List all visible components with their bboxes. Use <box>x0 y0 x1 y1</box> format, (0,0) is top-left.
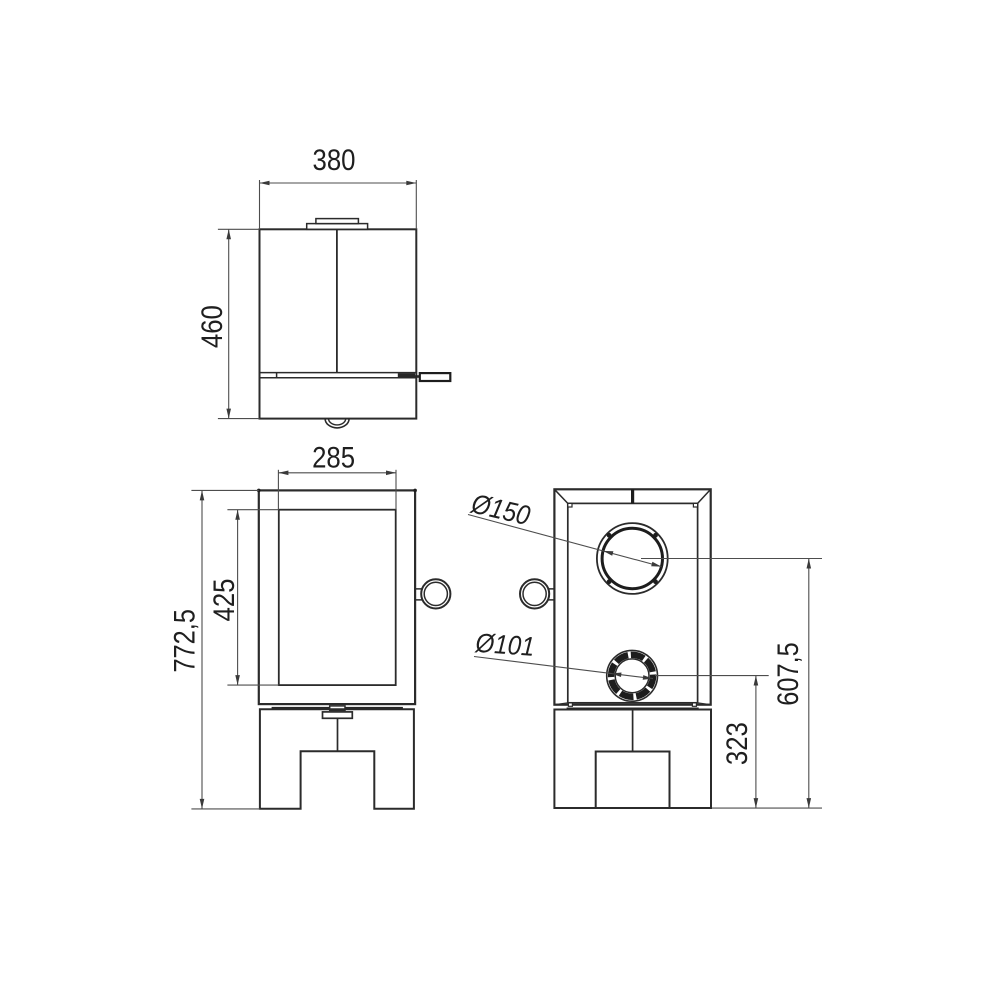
svg-text:285: 285 <box>312 441 355 474</box>
svg-text:425: 425 <box>208 579 241 622</box>
svg-text:772,5: 772,5 <box>169 609 202 673</box>
svg-text:607,5: 607,5 <box>772 642 805 706</box>
svg-text:323: 323 <box>721 722 754 765</box>
svg-text:Ø101: Ø101 <box>474 628 536 662</box>
svg-text:460: 460 <box>196 305 229 348</box>
svg-text:380: 380 <box>313 144 356 177</box>
